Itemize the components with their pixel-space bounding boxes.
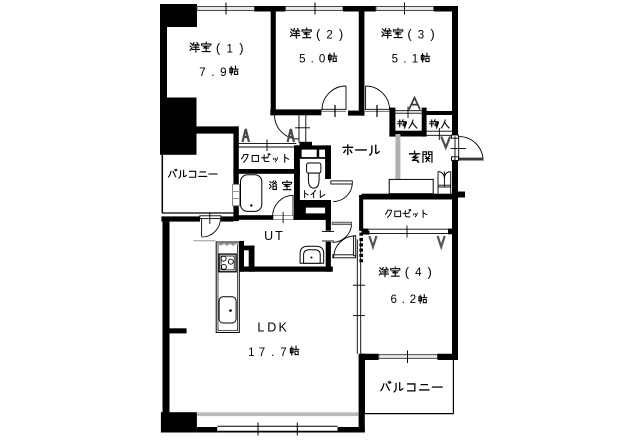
svg-text:6: 6: [390, 294, 396, 306]
svg-text:.: .: [211, 67, 214, 79]
svg-text:D: D: [267, 321, 276, 335]
svg-text:7: 7: [199, 67, 205, 79]
svg-text:U: U: [264, 229, 273, 243]
svg-text:L: L: [257, 321, 264, 335]
svg-text:0: 0: [319, 53, 325, 65]
svg-text:1: 1: [248, 347, 254, 359]
svg-text:7: 7: [280, 347, 286, 359]
svg-text:.: .: [402, 294, 405, 306]
svg-text:(: (: [407, 27, 412, 42]
svg-text:.: .: [271, 347, 274, 359]
svg-text:3: 3: [418, 29, 424, 41]
svg-text:): ): [428, 264, 432, 279]
svg-text:.: .: [311, 53, 314, 65]
svg-text:): ): [339, 27, 343, 42]
svg-text:5: 5: [299, 53, 305, 65]
svg-text:.: .: [403, 53, 406, 65]
svg-text:1: 1: [226, 43, 232, 55]
svg-text:2: 2: [410, 294, 416, 306]
svg-text:T: T: [275, 229, 283, 243]
svg-text:(: (: [405, 264, 410, 279]
svg-text:7: 7: [259, 347, 265, 359]
svg-text:5: 5: [392, 53, 398, 65]
svg-text:K: K: [279, 321, 288, 335]
svg-text:(: (: [216, 41, 221, 56]
svg-text:4: 4: [415, 267, 422, 279]
svg-text:(: (: [316, 27, 321, 42]
svg-text:1: 1: [412, 53, 418, 65]
svg-text:2: 2: [326, 29, 332, 41]
svg-text:): ): [430, 27, 434, 42]
svg-text:9: 9: [220, 67, 226, 79]
svg-text:): ): [239, 41, 243, 56]
